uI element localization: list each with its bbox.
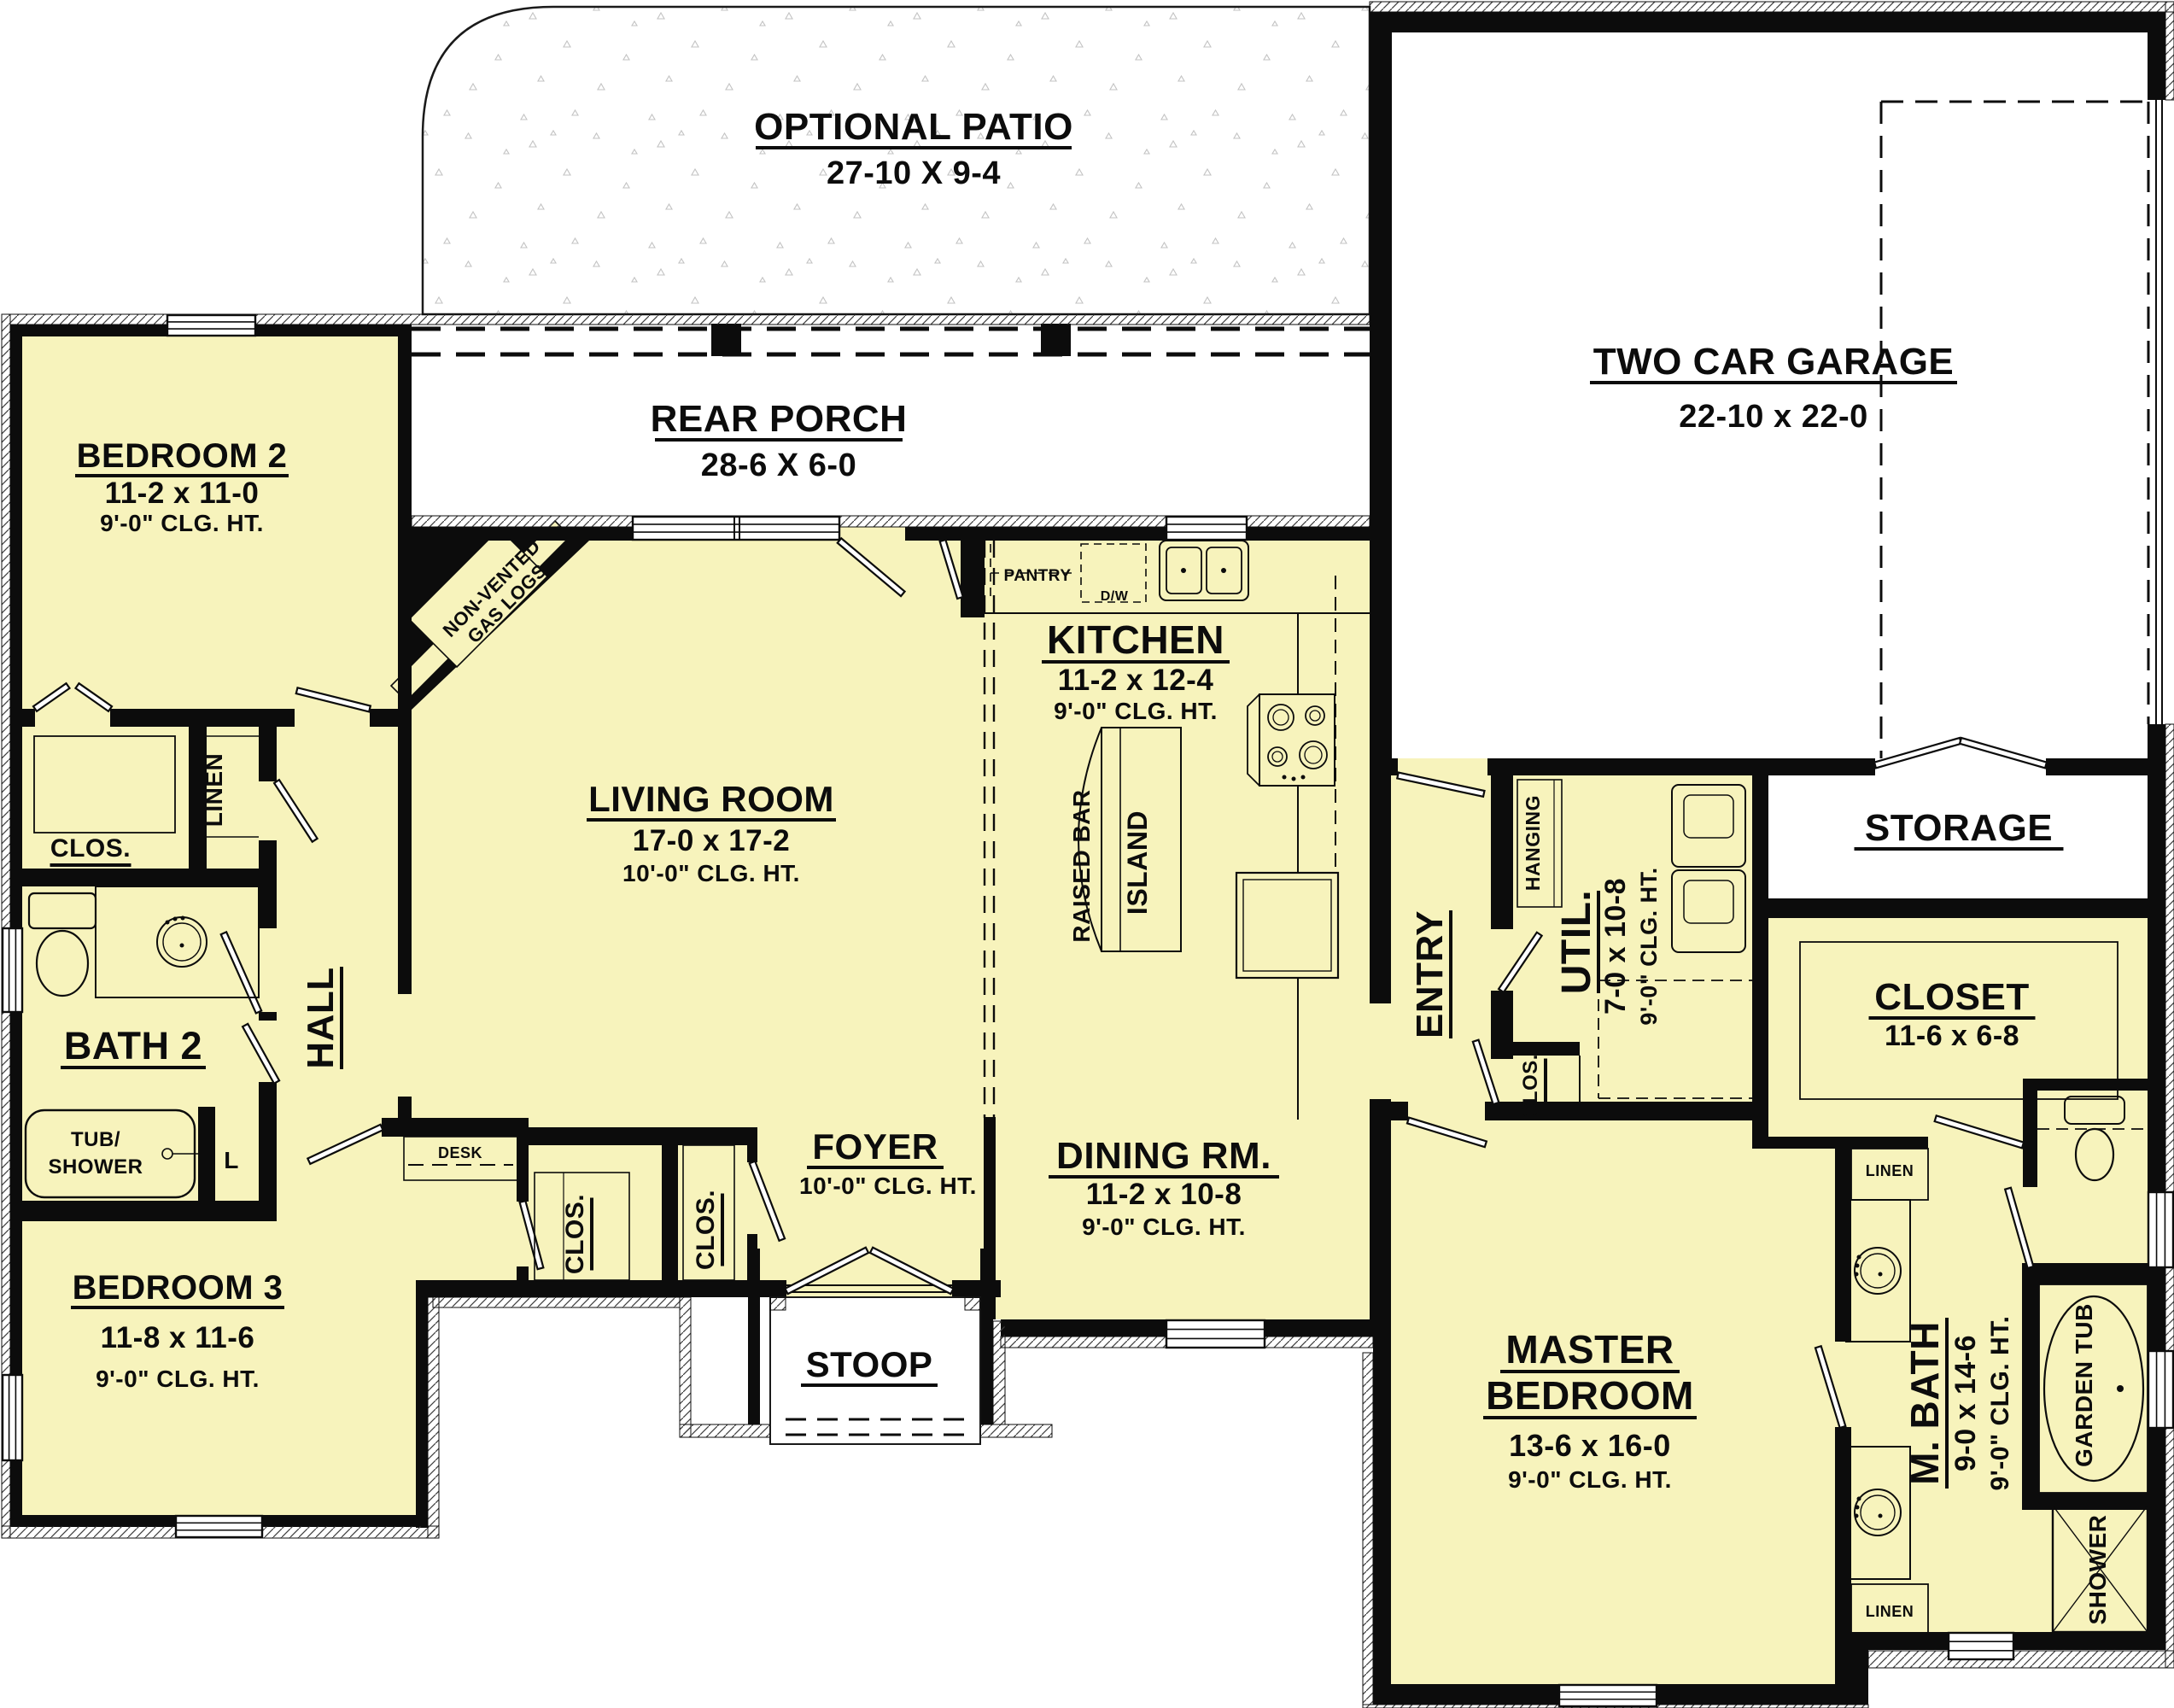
svg-text:9'-0" CLG. HT.: 9'-0" CLG. HT. [1082, 1214, 1246, 1240]
svg-text:TWO CAR GARAGE: TWO CAR GARAGE [1593, 341, 1955, 383]
svg-text:11-2 x 11-0: 11-2 x 11-0 [105, 477, 260, 510]
svg-text:9'-0" CLG. HT.: 9'-0" CLG. HT. [96, 1366, 260, 1392]
svg-text:UTIL.: UTIL. [1554, 890, 1599, 994]
svg-text:27-10 X 9-4: 27-10 X 9-4 [827, 155, 1001, 191]
svg-text:KITCHEN: KITCHEN [1047, 617, 1224, 662]
svg-text:9-0 x 14-6: 9-0 x 14-6 [1949, 1335, 1982, 1471]
svg-text:7-0 x 10-8: 7-0 x 10-8 [1599, 878, 1632, 1015]
svg-text:FOYER: FOYER [812, 1126, 938, 1167]
svg-text:10'-0" CLG. HT.: 10'-0" CLG. HT. [799, 1173, 977, 1199]
svg-text:HALL: HALL [300, 967, 342, 1068]
svg-text:CLOS.: CLOS. [692, 1190, 720, 1270]
svg-text:BATH 2: BATH 2 [64, 1024, 202, 1067]
svg-text:ISLAND: ISLAND [1122, 810, 1153, 915]
svg-text:22-10 x 22-0: 22-10 x 22-0 [1679, 399, 1868, 435]
svg-text:HANGING: HANGING [1522, 795, 1544, 891]
svg-text:9'-0" CLG. HT.: 9'-0" CLG. HT. [1508, 1466, 1672, 1493]
svg-text:CLOS.: CLOS. [561, 1194, 589, 1274]
svg-text:11-6 x 6-8: 11-6 x 6-8 [1885, 1020, 2019, 1052]
svg-text:REAR PORCH: REAR PORCH [651, 398, 908, 440]
svg-text:CLOSET: CLOSET [1874, 976, 2029, 1018]
svg-text:DINING RM.: DINING RM. [1056, 1135, 1271, 1177]
svg-text:MASTER: MASTER [1505, 1327, 1674, 1372]
svg-text:CLOS.: CLOS. [50, 834, 131, 863]
svg-text:11-2 x 10-8: 11-2 x 10-8 [1086, 1178, 1242, 1211]
svg-text:SHOWER: SHOWER [49, 1155, 143, 1179]
svg-text:DESK: DESK [438, 1144, 482, 1161]
svg-text:9'-0" CLG. HT.: 9'-0" CLG. HT. [1986, 1315, 2014, 1490]
svg-text:BEDROOM 2: BEDROOM 2 [77, 437, 288, 475]
svg-text:9'-0" CLG. HT.: 9'-0" CLG. HT. [1054, 698, 1218, 724]
svg-text:BEDROOM 3: BEDROOM 3 [73, 1269, 283, 1307]
svg-text:17-0 x 17-2: 17-0 x 17-2 [633, 824, 791, 857]
svg-text:10'-0" CLG. HT.: 10'-0" CLG. HT. [622, 860, 800, 886]
svg-text:STOOP: STOOP [806, 1344, 933, 1384]
svg-text:BEDROOM: BEDROOM [1486, 1373, 1694, 1418]
svg-text:PANTRY: PANTRY [1004, 567, 1072, 585]
svg-text:13-6 x 16-0: 13-6 x 16-0 [1509, 1428, 1671, 1463]
svg-text:ENTRY: ENTRY [1409, 910, 1451, 1038]
svg-text:CLOS.: CLOS. [1519, 1054, 1542, 1119]
svg-text:11-2 x 12-4: 11-2 x 12-4 [1058, 664, 1214, 697]
svg-text:OPTIONAL PATIO: OPTIONAL PATIO [754, 106, 1073, 148]
svg-text:SHOWER: SHOWER [2084, 1515, 2111, 1625]
svg-text:LINEN: LINEN [1866, 1162, 1914, 1179]
svg-text:M. BATH: M. BATH [1902, 1321, 1947, 1485]
svg-text:LIVING ROOM: LIVING ROOM [588, 779, 834, 819]
svg-text:LINEN: LINEN [201, 753, 227, 828]
svg-text:STORAGE: STORAGE [1865, 807, 2053, 849]
svg-text:11-8 x 11-6: 11-8 x 11-6 [101, 1321, 255, 1354]
svg-text:9'-0" CLG. HT.: 9'-0" CLG. HT. [100, 510, 264, 536]
svg-text:TUB/: TUB/ [71, 1128, 120, 1151]
svg-text:9'-0" CLG. HT.: 9'-0" CLG. HT. [1636, 867, 1662, 1025]
svg-text:LINEN: LINEN [1866, 1603, 1914, 1620]
svg-text:28-6 X 6-0: 28-6 X 6-0 [701, 447, 856, 483]
svg-text:GARDEN TUB: GARDEN TUB [2071, 1303, 2097, 1467]
svg-text:L: L [224, 1147, 239, 1173]
